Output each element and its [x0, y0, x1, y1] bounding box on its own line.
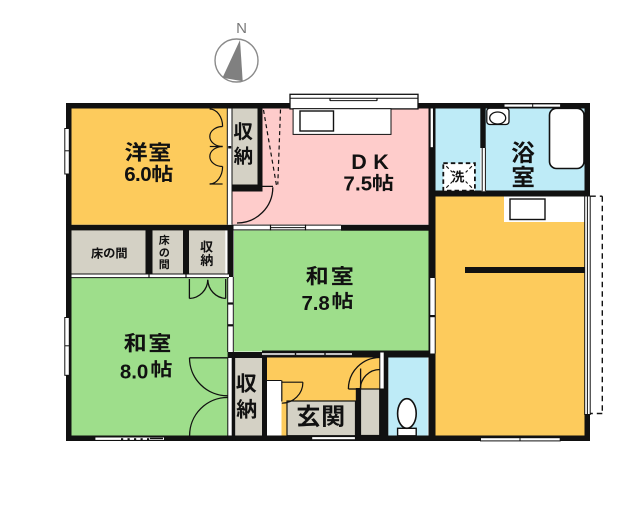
- svg-text:8.0: 8.0: [120, 360, 148, 383]
- svg-text:7.5: 7.5: [343, 173, 372, 196]
- svg-text:N: N: [236, 20, 247, 37]
- svg-text:7.8: 7.8: [302, 292, 330, 315]
- svg-text:6.0: 6.0: [124, 163, 151, 186]
